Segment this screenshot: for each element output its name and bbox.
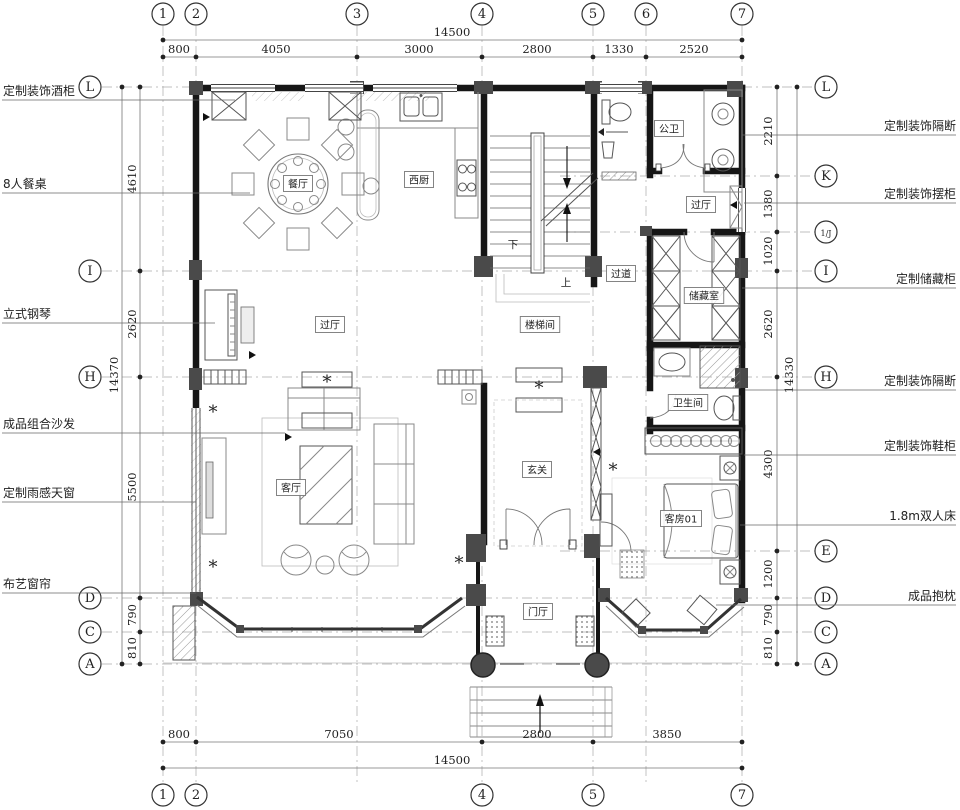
dim-tick: [591, 740, 596, 745]
kitchen-counter-right: [455, 128, 478, 218]
arrow-icon: [598, 128, 604, 136]
dim-value: 2800: [522, 42, 551, 56]
barrel-chair: [339, 545, 369, 575]
axis-label-7: 7: [738, 7, 746, 22]
axis-label-D: D: [821, 591, 831, 606]
axis-label-2: 2: [192, 7, 200, 22]
staircase: [490, 133, 598, 302]
bay-window-left: [197, 597, 465, 637]
window-bathroom-top: [600, 83, 642, 94]
dim-value: 4050: [261, 42, 290, 56]
plan-body: * * * * * *: [163, 81, 748, 737]
dim-tick: [161, 55, 166, 60]
stair-label-0: 下: [508, 239, 519, 251]
svg-text:*: *: [455, 553, 464, 574]
window-box-left-bottom: [173, 606, 195, 660]
wine-cabinet: [212, 92, 246, 120]
svg-text:*: *: [535, 378, 544, 399]
axis-label-2: 2: [192, 788, 200, 803]
dim-tick: [138, 85, 143, 90]
dim-value: 2210: [761, 116, 775, 145]
pillow: [687, 595, 717, 624]
dim-value: 4300: [761, 449, 775, 478]
wine-cabinet: [329, 92, 361, 120]
axis-label-1: 1: [159, 7, 167, 22]
svg-text:*: *: [209, 557, 218, 578]
dim-value: 790: [125, 604, 139, 626]
room-label-8: 卫生间: [673, 397, 703, 410]
porch-column: [585, 653, 609, 677]
axis-label-C: C: [821, 625, 831, 640]
dim-value: 1380: [761, 189, 775, 218]
dim-tick: [355, 55, 360, 60]
dim-value: 810: [125, 637, 139, 659]
wardrobe: [645, 428, 742, 454]
dim-tick: [740, 55, 745, 60]
floor-plan-drawing: * * * * * * 1450080040503000280013302520…: [0, 0, 960, 810]
upright-piano: [205, 290, 254, 360]
storage-cabinets: [652, 232, 740, 340]
dim-tick: [161, 740, 166, 745]
callout-right-6: 成品抱枕: [908, 588, 956, 603]
dim-tick: [740, 38, 745, 43]
svg-text:*: *: [609, 460, 618, 481]
dim-value: 5500: [125, 472, 139, 501]
dim-tick: [161, 766, 166, 771]
dim-tick: [644, 55, 649, 60]
dining-area: [212, 92, 364, 250]
coffee-table: [300, 446, 352, 524]
dim-value: 810: [761, 637, 775, 659]
bedside-rug: [620, 550, 644, 578]
dim-value: 7050: [324, 727, 353, 741]
dim-value: 3000: [404, 42, 433, 56]
tv-console: [600, 494, 612, 546]
double-door: [656, 144, 710, 171]
dim-tick: [194, 740, 199, 745]
dim-tick: [480, 55, 485, 60]
entry-double-door: [500, 509, 576, 549]
callout-left-0: 定制装饰酒柜: [3, 83, 75, 98]
dim-tick: [795, 662, 800, 667]
callout-left-3: 成品组合沙发: [3, 416, 75, 431]
dim-tick: [120, 662, 125, 667]
room-label-5: 储藏室: [689, 290, 719, 303]
dim-tick: [740, 740, 745, 745]
dim-tick: [138, 596, 143, 601]
callout-left-2: 立式钢琴: [3, 306, 51, 321]
dim-tick: [194, 55, 199, 60]
nightstand: [720, 456, 740, 480]
axis-label-3: 3: [353, 7, 361, 22]
dim-value: 1200: [761, 559, 775, 588]
dim-value: 1330: [604, 42, 633, 56]
axis-circles-layer: 123456712457LIHDCALK1/JIHEDCA: [79, 3, 837, 806]
axis-label-A: A: [84, 657, 95, 672]
side-table: [316, 556, 334, 574]
callout-left-5: 布艺窗帘: [3, 576, 51, 591]
dim-tick: [775, 630, 780, 635]
dim-value: 3850: [652, 727, 681, 741]
stair-down-arrow: [563, 178, 571, 189]
dim-tick: [795, 85, 800, 90]
room-label-11: 客房01: [665, 513, 698, 526]
dim-tick: [138, 375, 143, 380]
axis-label-A: A: [820, 657, 831, 672]
axis-label-7: 7: [738, 788, 746, 803]
chaise-sofa: [374, 424, 414, 544]
dim-value: 14500: [434, 25, 471, 39]
dim-value: 2620: [125, 309, 139, 338]
bathroom-sink: [659, 353, 685, 371]
porch-pilaster: [486, 616, 504, 646]
room-label-1: 西厨: [409, 175, 429, 187]
stair-stringer: [531, 133, 544, 273]
axis-label-L: L: [86, 80, 95, 95]
dim-tick: [775, 596, 780, 601]
living-room: [202, 388, 414, 575]
dim-value: 4610: [125, 164, 139, 193]
axis-label-K: K: [821, 169, 831, 184]
room-label-12: 门厅: [528, 606, 548, 619]
room-label-2: 公卫: [659, 125, 679, 136]
axis-label-4: 4: [478, 7, 486, 22]
axis-label-5: 5: [589, 7, 597, 22]
room-label-10: 客厅: [281, 482, 301, 495]
room-label-3: 过厅: [691, 199, 711, 212]
callout-left-4: 定制雨感天窗: [3, 485, 75, 500]
axis-label-L: L: [822, 80, 831, 95]
callout-right-0: 定制装饰隔断: [884, 118, 956, 133]
room-label-9: 玄关: [527, 464, 547, 477]
axis-label-6: 6: [642, 7, 650, 22]
stair-label-1: 上: [561, 277, 572, 289]
dim-tick: [775, 269, 780, 274]
window-living-left: [191, 408, 202, 592]
axis-label-C: C: [85, 625, 95, 640]
callout-right-1: 定制装饰摆柜: [884, 186, 956, 201]
dim-tick: [775, 85, 780, 90]
nightstand: [720, 560, 740, 584]
dim-value: 1020: [761, 236, 775, 265]
dim-value: 790: [761, 604, 775, 626]
dim-tick: [775, 230, 780, 235]
curtain-hatch-1: [252, 92, 304, 101]
vanity-double-basin: [704, 90, 742, 192]
toilet: [602, 100, 631, 124]
callout-right-3: 定制装饰隔断: [884, 373, 956, 388]
dim-tick: [740, 766, 745, 771]
bar-stool: [363, 178, 379, 194]
dim-tick: [161, 38, 166, 43]
light-symbols: * * * * * *: [209, 372, 618, 578]
dim-value: 2800: [522, 727, 551, 741]
room-label-6: 楼梯间: [525, 319, 555, 332]
piano-bench: [241, 307, 254, 343]
dim-tick: [138, 630, 143, 635]
floor-plan-page: * * * * * * 1450080040503000280013302520…: [0, 0, 960, 810]
low-wall-hatch: [602, 172, 636, 180]
dim-tick: [775, 375, 780, 380]
dim-value: 800: [168, 42, 190, 56]
guest-room: [600, 428, 742, 584]
dim-value: 14330: [782, 357, 796, 394]
axis-label-5: 5: [589, 788, 597, 803]
west-kitchen: [338, 92, 478, 220]
callout-left-1: 8人餐桌: [3, 176, 47, 191]
room-label-7: 过厅: [320, 319, 340, 332]
room-label-4: 过道: [611, 268, 631, 281]
callout-right-2: 定制储藏柜: [896, 271, 956, 286]
callout-right-4: 定制装饰鞋柜: [884, 438, 956, 453]
dim-tick: [138, 269, 143, 274]
entry-porch: [470, 616, 612, 737]
callouts-layer: 定制装饰酒柜8人餐桌立式钢琴成品组合沙发定制雨感天窗布艺窗帘定制装饰隔断定制装饰…: [2, 83, 956, 605]
axis-label-I: I: [823, 264, 828, 279]
dim-value: 2520: [679, 42, 708, 56]
dim-tick: [120, 85, 125, 90]
sofa: [288, 388, 360, 430]
dim-tick: [775, 662, 780, 667]
porch-column: [471, 653, 495, 677]
cooktop: [457, 160, 476, 196]
axis-label-1: 1: [159, 788, 167, 803]
callout-right-5: 1.8m双人床: [889, 509, 956, 523]
barrel-chair: [281, 545, 311, 575]
axis-label-H: H: [820, 370, 831, 385]
dim-value: 14500: [434, 753, 471, 767]
tv-cabinet: [202, 438, 226, 534]
axis-label-H: H: [84, 370, 95, 385]
axis-label-4: 4: [478, 788, 486, 803]
dim-value: 800: [168, 727, 190, 741]
dim-tick: [591, 55, 596, 60]
switch-symbol: [462, 390, 476, 404]
svg-text:*: *: [209, 402, 218, 423]
dim-tick: [480, 740, 485, 745]
axis-label-1/J: 1/J: [821, 229, 832, 238]
svg-text:*: *: [323, 372, 332, 393]
porch-pilaster: [576, 616, 594, 646]
bay-window-right: [606, 595, 744, 637]
window-kitchen: [373, 83, 457, 94]
axis-label-I: I: [87, 264, 92, 279]
dim-tick: [138, 662, 143, 667]
toilet: [714, 396, 740, 420]
dim-value: 14370: [107, 357, 121, 394]
small-basin: [602, 142, 614, 158]
dim-value: 2620: [761, 309, 775, 338]
axis-label-E: E: [821, 544, 831, 559]
dim-tick: [775, 549, 780, 554]
room-label-0: 餐厅: [288, 178, 308, 191]
dim-tick: [775, 174, 780, 179]
